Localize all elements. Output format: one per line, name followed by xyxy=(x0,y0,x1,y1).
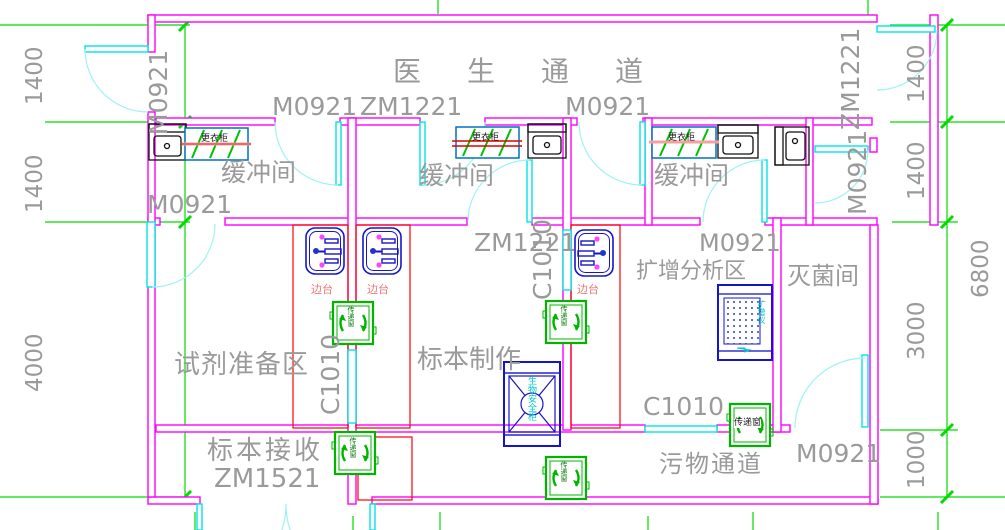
door-code-zm1221-buffer2-top: ZM1221 xyxy=(360,94,462,119)
sink-buffer2 xyxy=(528,124,566,158)
room-label-specimen-receiving: 标本接收 xyxy=(207,438,323,464)
floor-plan: 医生通道 M0921 ZM1221 M0921 M0921 ZM1221 M09… xyxy=(0,0,1005,530)
door-code-m0921-buffer1-top: M0921 xyxy=(272,94,357,119)
sink-buffer3-b xyxy=(775,127,809,165)
door-leaf-buffer1 xyxy=(336,122,341,185)
room-label-doctor-corridor: 医生通道 xyxy=(393,58,689,86)
door-code-m0921-left-vertical: M0921 xyxy=(146,50,171,135)
chair-specimen xyxy=(363,228,401,274)
dim-right-1400b: 1400 xyxy=(906,141,929,200)
door-leaf-entry-right xyxy=(370,504,375,530)
wardrobes xyxy=(182,127,719,160)
window-code-c1010-left-vertical: C1010 xyxy=(318,334,343,415)
bench-label-2: 边台 xyxy=(367,284,389,295)
dim-left-4000: 4000 xyxy=(24,333,47,392)
door-leaf-specimen xyxy=(527,160,532,222)
pass-window-label-main: 传递窗 xyxy=(734,419,761,428)
pass-window-label-4: 传递窗 xyxy=(560,461,567,482)
door-code-m0921-right-vertical: M0921 xyxy=(845,130,870,215)
room-label-buffer2: 缓冲间 xyxy=(419,163,494,188)
door-code-zm1521: ZM1521 xyxy=(214,466,320,492)
room-label-sterilization: 灭菌间 xyxy=(787,264,859,288)
dim-left-1400a: 1400 xyxy=(24,46,47,105)
door-code-m0921-buffer1-inner: M0921 xyxy=(147,192,232,217)
door-code-m0921-amplification: M0921 xyxy=(699,231,781,255)
dim-right-1000: 1000 xyxy=(906,430,929,489)
wardrobe-label-2: 更衣柜 xyxy=(472,134,499,143)
sink-buffer3-a xyxy=(718,125,758,158)
chair-amplification xyxy=(575,230,613,276)
door-leaf-entry-left xyxy=(197,504,202,530)
amplifier-label: 扩增仪 xyxy=(757,300,765,324)
bench-label-1: 边台 xyxy=(311,284,333,295)
biosafety-cabinet-label: 生物安全柜 xyxy=(526,376,535,421)
door-leaf-waste xyxy=(862,355,868,427)
window-c1010-left xyxy=(348,350,356,423)
room-label-reagent-prep: 试剂准备区 xyxy=(174,352,309,378)
dim-right-1400a: 1400 xyxy=(906,44,929,103)
pass-window-label-1: 传递窗 xyxy=(347,306,354,327)
door-leaf-amplification xyxy=(762,160,767,222)
bench-label-3: 边台 xyxy=(577,284,599,295)
door-leaf-topright xyxy=(877,26,935,32)
room-label-buffer3: 缓冲间 xyxy=(654,163,729,188)
room-label-amplification: 扩增分析区 xyxy=(636,261,746,283)
window-code-c1010-bottom: C1010 xyxy=(643,394,724,419)
wardrobe-label-1: 更衣柜 xyxy=(201,135,228,144)
chair-reagent xyxy=(306,228,344,274)
room-label-specimen-making: 标本制作 xyxy=(417,347,521,373)
pass-window-label-2: 传递窗 xyxy=(560,305,567,326)
window-code-c1010-center-vertical: C1010 xyxy=(530,219,555,300)
pass-window-label-3: 传递窗 xyxy=(349,437,356,458)
door-leaf-buffer3 xyxy=(640,122,645,185)
room-label-waste-corridor: 污物通道 xyxy=(659,452,763,476)
door-code-zm1221-right-vertical: ZM1221 xyxy=(838,28,863,130)
door-code-zm1221-center: ZM1221 xyxy=(474,230,576,255)
room-label-buffer1: 缓冲间 xyxy=(221,160,296,185)
dim-left-1400b: 1400 xyxy=(24,154,47,213)
door-leaf-topleft xyxy=(85,46,148,52)
window-c1010-bottom xyxy=(645,426,717,432)
dim-total-6800: 6800 xyxy=(970,239,993,298)
door-code-m0921-bottom-right: M0921 xyxy=(796,441,881,466)
dim-right-3000: 3000 xyxy=(906,301,929,360)
wardrobe-buffer1 xyxy=(182,128,251,160)
wardrobe-label-3: 更衣柜 xyxy=(668,134,695,143)
door-code-m0921-buffer3-top: M0921 xyxy=(565,94,650,119)
door-leaf-left xyxy=(147,222,155,287)
